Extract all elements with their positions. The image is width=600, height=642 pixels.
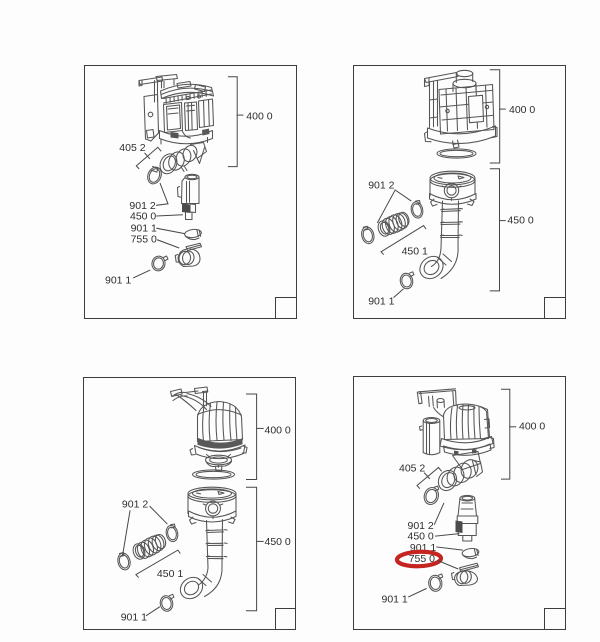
- svg-text:901 1: 901 1: [368, 296, 394, 308]
- svg-text:901 1: 901 1: [382, 594, 408, 606]
- svg-text:901 1: 901 1: [121, 612, 147, 624]
- svg-text:450 1: 450 1: [157, 568, 183, 580]
- svg-text:755 0: 755 0: [409, 553, 435, 565]
- svg-text:405 2: 405 2: [399, 463, 425, 475]
- svg-text:400 0: 400 0: [519, 421, 545, 433]
- svg-text:450 0: 450 0: [408, 531, 434, 543]
- svg-text:901 2: 901 2: [122, 499, 148, 511]
- svg-text:400 0: 400 0: [265, 424, 291, 436]
- svg-text:450 0: 450 0: [265, 536, 291, 548]
- svg-text:400 0: 400 0: [246, 110, 272, 122]
- svg-text:901 1: 901 1: [131, 222, 157, 234]
- svg-text:450 0: 450 0: [507, 214, 533, 226]
- svg-text:901 1: 901 1: [105, 274, 131, 286]
- svg-text:405 2: 405 2: [119, 142, 145, 154]
- svg-text:755 0: 755 0: [131, 234, 157, 246]
- svg-text:450 1: 450 1: [402, 245, 428, 257]
- svg-text:400 0: 400 0: [509, 104, 535, 116]
- svg-text:901 2: 901 2: [368, 179, 394, 191]
- svg-text:450 0: 450 0: [130, 211, 156, 223]
